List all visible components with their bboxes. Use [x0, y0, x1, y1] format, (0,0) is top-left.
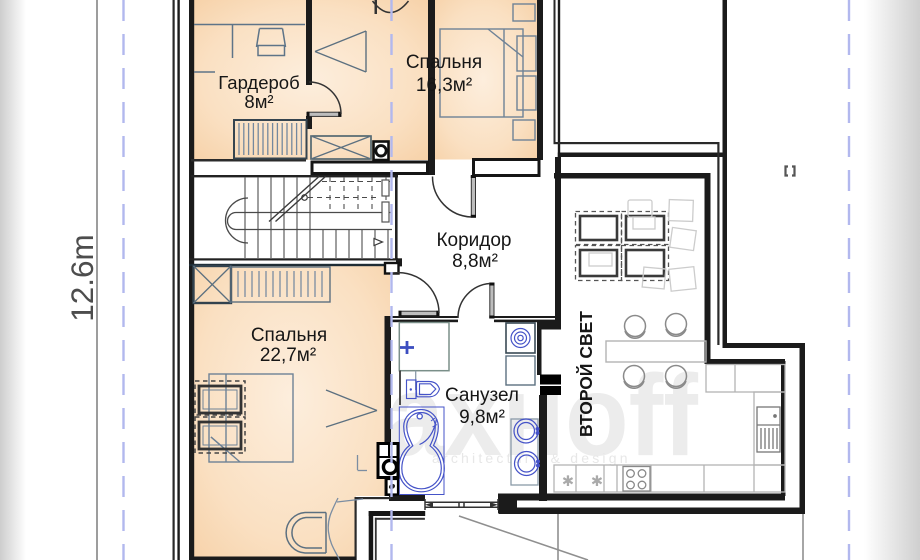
svg-text:8м²: 8м² [244, 91, 273, 112]
svg-text:✱: ✱ [562, 474, 574, 490]
svg-text:16,3м²: 16,3м² [416, 75, 472, 96]
svg-text:Гардероб: Гардероб [218, 72, 299, 93]
svg-text:12.6m: 12.6m [64, 234, 100, 322]
svg-text:Спальня: Спальня [251, 325, 327, 346]
svg-text:22,7м²: 22,7м² [260, 345, 316, 366]
svg-text:ВТОРОЙ СВЕТ: ВТОРОЙ СВЕТ [575, 311, 596, 437]
svg-text:✱: ✱ [591, 474, 603, 490]
svg-text:Коридор: Коридор [436, 230, 511, 251]
svg-text:Санузел: Санузел [445, 385, 519, 406]
svg-text:Спальня: Спальня [406, 52, 482, 73]
svg-text:9,8м²: 9,8м² [459, 407, 505, 428]
svg-text:8,8м²: 8,8м² [452, 251, 498, 272]
